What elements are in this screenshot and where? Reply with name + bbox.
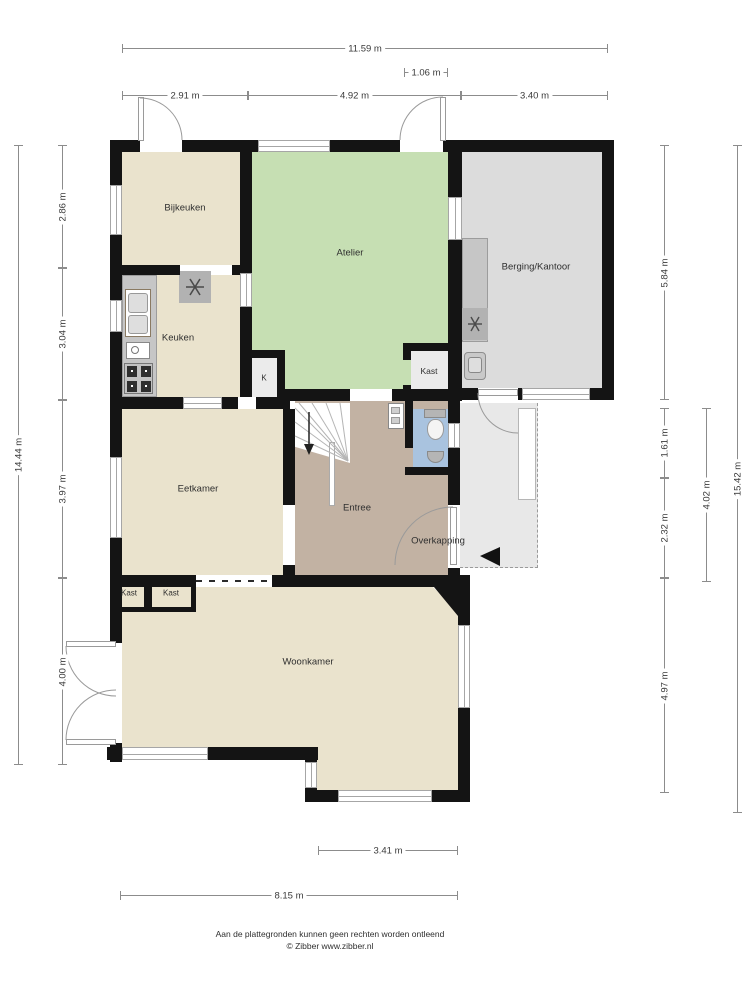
wall-segment (602, 152, 614, 400)
wall-segment (403, 351, 411, 360)
window (110, 457, 122, 538)
room-label-berging-kantoor: Berging/Kantoor (502, 262, 571, 273)
dimension-tick (457, 846, 458, 855)
room-label-eetkamer: Eetkamer (178, 484, 219, 495)
wall-segment (283, 565, 295, 575)
window-pane (116, 458, 117, 537)
dimension-tick (58, 268, 67, 269)
kitchen-sink-bowl-1 (128, 293, 148, 313)
dimension-161m: 1.61 m (664, 408, 665, 478)
room-label-kast-left: Kast (121, 589, 137, 598)
wall-segment (110, 265, 180, 275)
open-passage-dashed (196, 577, 272, 585)
dimension-tick (660, 478, 669, 479)
dimension-402m: 4.02 m (706, 408, 707, 582)
room-label-overkapping: Overkapping (411, 536, 465, 547)
dimension-tick (702, 581, 711, 582)
room-label-bijkeuken: Bijkeuken (164, 203, 205, 214)
dimension-340m: 3.40 m (461, 95, 608, 96)
dimension-tick (122, 91, 123, 100)
room-label-k-closet: K (261, 374, 266, 383)
wall-segment (107, 747, 122, 760)
dimension-label: 5.84 m (660, 255, 671, 290)
dimension-label: 2.86 m (58, 189, 69, 224)
window (258, 140, 330, 152)
room-label-keuken: Keuken (162, 333, 194, 344)
wall-segment (448, 401, 460, 423)
dimension-tick (660, 792, 669, 793)
window-pane (523, 394, 589, 395)
dimension-tick (404, 68, 405, 77)
window-pane (184, 403, 221, 404)
window-pane (454, 424, 455, 447)
toilet-bowl (427, 419, 444, 440)
dimension-tick (607, 91, 608, 100)
window (110, 185, 122, 235)
door-arc-french-bottom (66, 690, 116, 740)
dimension-label: 4.02 m (702, 477, 713, 512)
dimension-tick (120, 891, 121, 900)
dashed-line (196, 580, 272, 582)
berging-sink-bowl (468, 357, 482, 373)
dimension-label: 3.41 m (370, 846, 405, 857)
wall-segment (305, 790, 338, 802)
stair-railing (329, 442, 335, 506)
window (458, 625, 470, 708)
footer-disclaimer: Aan de plattegronden kunnen geen rechten… (30, 928, 630, 940)
window (110, 300, 122, 332)
wall-segment (462, 140, 614, 152)
wall-segment (403, 343, 456, 351)
window (338, 790, 432, 802)
room-label-woonkamer: Woonkamer (282, 657, 333, 668)
window (448, 197, 462, 240)
wall-segment (110, 140, 140, 152)
dimension-label: 4.92 m (337, 91, 372, 102)
window-pane (116, 186, 117, 234)
wall-segment (110, 152, 122, 185)
dimension-341m: 3.41 m (318, 850, 458, 851)
toilet-tank (424, 409, 446, 418)
wall-segment (110, 578, 115, 612)
wall-segment (443, 140, 462, 152)
kitchen-sink-bowl-2 (128, 315, 148, 334)
wall-segment (458, 609, 470, 625)
dimension-label: 3.97 m (58, 471, 69, 506)
window-pane (246, 274, 247, 306)
dimension-tick (318, 846, 319, 855)
dimension-label: 3.04 m (58, 316, 69, 351)
dishwasher-knob (131, 346, 139, 354)
window (183, 397, 222, 409)
dimension-tick (457, 891, 458, 900)
burner (127, 366, 137, 377)
dimension-label: 2.32 m (660, 510, 671, 545)
dimension-tick (58, 400, 67, 401)
dimension-304m: 3.04 m (62, 268, 63, 400)
dimension-1444m: 14.44 m (18, 145, 19, 765)
dimension-497m: 4.97 m (664, 578, 665, 793)
dimension-286m: 2.86 m (62, 145, 63, 268)
window-pane (311, 763, 312, 787)
dimension-tick (447, 68, 448, 77)
wall-segment (448, 152, 462, 197)
dimension-tick (461, 91, 462, 100)
dimension-label: 15.42 m (733, 459, 744, 499)
meter-box-2 (391, 417, 400, 424)
wall-segment (110, 607, 196, 612)
dimension-label: 3.40 m (517, 91, 552, 102)
dimension-tick (58, 145, 67, 146)
footer-copyright: © Zibber www.zibber.nl (30, 940, 630, 952)
dimension-label: 14.44 m (14, 435, 25, 475)
wall-segment (330, 140, 400, 152)
dimension-label: 1.61 m (660, 425, 671, 460)
stove-hob (124, 363, 153, 394)
dimension-400m: 4.00 m (62, 578, 63, 765)
burner (141, 381, 151, 392)
dimension-291m: 2.91 m (122, 95, 248, 96)
wall-segment (283, 409, 295, 505)
window-pane (123, 754, 207, 755)
wall-segment (458, 708, 470, 802)
wall-segment (240, 350, 252, 397)
door-arc-bijkeuken-entry (140, 98, 182, 140)
burner (127, 381, 137, 392)
dimension-label: 4.97 m (660, 668, 671, 703)
dimension-label: 1.06 m (408, 68, 443, 79)
boiler-unit (462, 308, 488, 340)
wall-segment (240, 307, 252, 350)
wall-segment (305, 747, 317, 762)
dimension-584m: 5.84 m (664, 145, 665, 400)
room-label-kast-atelier: Kast (420, 366, 437, 376)
dimension-tick (14, 145, 23, 146)
wall-segment (240, 152, 252, 273)
window (305, 762, 317, 788)
wall-segment (208, 747, 318, 760)
wall-segment (110, 578, 196, 583)
wall-segment (405, 401, 413, 448)
dimension-tick (607, 44, 608, 53)
burner (141, 366, 151, 377)
room-label-kast-right: Kast (163, 589, 179, 598)
window (122, 747, 208, 760)
wall-segment (462, 388, 478, 400)
dimension-tick (58, 578, 67, 579)
dimension-492m: 4.92 m (248, 95, 461, 96)
window-pane (116, 301, 117, 331)
dimension-tick (660, 145, 669, 146)
wall-segment (182, 140, 258, 152)
wall-segment (448, 240, 462, 343)
porch-pillar (518, 408, 536, 500)
dimension-tick (733, 812, 742, 813)
wall-segment (392, 389, 403, 401)
window (240, 273, 252, 307)
dimension-tick (58, 764, 67, 765)
dimension-label: 11.59 m (345, 44, 385, 55)
dimension-tick (733, 145, 742, 146)
wall-segment (110, 332, 122, 457)
extractor-unit (179, 271, 211, 303)
door-arc-atelier-entry (400, 97, 443, 140)
room-label-atelier: Atelier (337, 248, 364, 259)
window-pane (259, 146, 329, 147)
dimension-tick (702, 408, 711, 409)
dimension-label: 2.91 m (167, 91, 202, 102)
floorplan-page: BijkeukenKeukenAtelierBerging/KantoorKas… (0, 0, 750, 1000)
dimension-tick (660, 408, 669, 409)
door-leaf (66, 739, 116, 745)
window (448, 423, 460, 448)
room-label-entree: Entree (343, 503, 371, 514)
dimension-tick (122, 44, 123, 53)
window (522, 388, 590, 400)
dimension-label: 4.00 m (58, 654, 69, 689)
wall-segment (448, 448, 460, 505)
dimension-tick (14, 764, 23, 765)
meter-box-1 (391, 407, 400, 414)
wall-segment (292, 575, 448, 587)
door-arc-french-top (66, 646, 116, 696)
dimension-tick (660, 399, 669, 400)
wall-segment (256, 397, 290, 409)
dimension-232m: 2.32 m (664, 478, 665, 578)
door-leaf (440, 97, 446, 141)
dimension-397m: 3.97 m (62, 400, 63, 578)
wall-segment (110, 397, 183, 409)
door-leaf (478, 389, 518, 396)
window-pane (455, 198, 456, 239)
wall-segment (590, 388, 614, 400)
wall-segment (283, 389, 350, 401)
dimension-tick (248, 91, 249, 100)
wall-segment (252, 350, 285, 358)
door-leaf (66, 641, 116, 647)
wall-segment (272, 575, 292, 587)
wall-segment (448, 575, 470, 587)
door-leaf (138, 97, 144, 141)
dimension-1159m: 11.59 m (122, 48, 608, 49)
wall-segment (403, 389, 456, 401)
dimension-815m: 8.15 m (120, 895, 458, 896)
window-pane (464, 626, 465, 707)
wall-segment (448, 568, 460, 575)
dimension-106m: 1.06 m (404, 72, 448, 73)
dimension-1542m: 15.42 m (737, 145, 738, 813)
window-pane (339, 796, 431, 797)
wall-segment (144, 578, 152, 612)
footer: Aan de plattegronden kunnen geen rechten… (30, 928, 630, 952)
dimension-label: 8.15 m (271, 891, 306, 902)
wall-segment (222, 397, 238, 409)
dimension-tick (660, 578, 669, 579)
